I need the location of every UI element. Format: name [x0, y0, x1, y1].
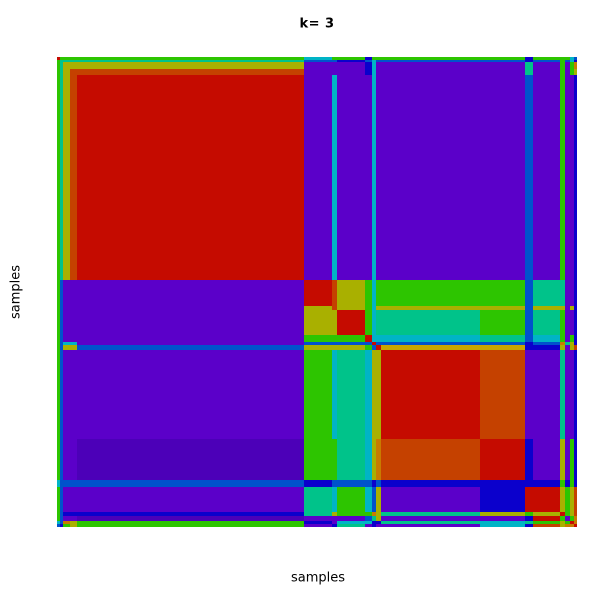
matrix-cell: [337, 439, 365, 480]
matrix-cell: [70, 75, 77, 280]
matrix-cell: [70, 524, 77, 527]
matrix-cell: [480, 75, 525, 280]
matrix-cell: [533, 75, 560, 280]
y-axis-label: samples: [9, 265, 24, 319]
matrix-cell: [525, 480, 533, 487]
matrix-cell: [480, 524, 525, 527]
matrix-cell: [533, 480, 560, 487]
matrix-cell: [574, 487, 577, 511]
matrix-cell: [77, 75, 304, 280]
matrix-cell: [304, 75, 332, 280]
matrix-cell: [480, 280, 525, 305]
matrix-cell: [533, 439, 560, 480]
matrix-cell: [70, 480, 77, 487]
matrix-cell: [337, 480, 365, 487]
matrix-cell: [381, 75, 480, 280]
matrix-cell: [533, 350, 560, 439]
matrix-cell: [304, 280, 332, 305]
matrix-cell: [77, 350, 304, 439]
plot-canvas: k= 3 samples samples: [0, 0, 600, 600]
matrix-cell: [480, 487, 525, 511]
matrix-cell: [63, 310, 70, 335]
matrix-cell: [381, 439, 480, 480]
consensus-matrix-heatmap: [57, 57, 577, 527]
matrix-cell: [533, 524, 560, 527]
matrix-cell: [365, 280, 372, 305]
matrix-cell: [63, 75, 70, 280]
matrix-cell: [63, 480, 70, 487]
matrix-cell: [77, 280, 304, 305]
page-title: k= 3: [299, 17, 334, 32]
matrix-cell: [337, 75, 365, 280]
matrix-cell: [533, 310, 560, 335]
matrix-cell: [533, 487, 560, 511]
matrix-cell: [365, 487, 372, 511]
matrix-cell: [337, 350, 365, 439]
matrix-cell: [77, 524, 304, 527]
matrix-cell: [381, 310, 480, 335]
matrix-cell: [480, 439, 525, 480]
matrix-cell: [70, 310, 77, 335]
matrix-cell: [63, 524, 70, 527]
matrix-cell: [304, 310, 332, 335]
matrix-cell: [304, 480, 332, 487]
matrix-cell: [77, 439, 304, 480]
matrix-cell: [70, 487, 77, 511]
matrix-cell: [574, 75, 577, 280]
matrix-cell: [63, 487, 70, 511]
matrix-cell: [365, 75, 372, 280]
matrix-cell: [337, 487, 365, 511]
matrix-cell: [525, 524, 533, 527]
matrix-cell: [381, 487, 480, 511]
matrix-cell: [525, 439, 533, 480]
matrix-cell: [480, 350, 525, 439]
matrix-cell: [574, 310, 577, 335]
matrix-cell: [525, 487, 533, 511]
matrix-cell: [337, 280, 365, 305]
matrix-cell: [574, 439, 577, 480]
matrix-cell: [574, 280, 577, 305]
matrix-cell: [63, 350, 70, 439]
matrix-cell: [365, 480, 372, 487]
matrix-cell: [574, 350, 577, 439]
matrix-cell: [525, 75, 533, 280]
matrix-cell: [63, 439, 70, 480]
matrix-cell: [525, 280, 533, 305]
matrix-cell: [70, 350, 77, 439]
matrix-cell: [381, 524, 480, 527]
matrix-cell: [70, 439, 77, 480]
matrix-cell: [533, 280, 560, 305]
matrix-cell: [525, 350, 533, 439]
matrix-cell: [365, 350, 372, 439]
matrix-cell: [304, 350, 332, 439]
matrix-cell: [63, 280, 70, 305]
matrix-cell: [365, 524, 372, 527]
matrix-cell: [337, 524, 365, 527]
matrix-cell: [304, 487, 332, 511]
matrix-cell: [480, 310, 525, 335]
matrix-cell: [304, 439, 332, 480]
matrix-cell: [337, 310, 365, 335]
matrix-cell: [574, 480, 577, 487]
matrix-cell: [381, 350, 480, 439]
matrix-cell: [365, 439, 372, 480]
matrix-cell: [381, 280, 480, 305]
matrix-cell: [77, 487, 304, 511]
x-axis-label: samples: [291, 571, 345, 586]
matrix-cell: [480, 480, 525, 487]
matrix-cell: [525, 310, 533, 335]
matrix-cell: [381, 480, 480, 487]
matrix-cell: [77, 310, 304, 335]
matrix-cell: [365, 310, 372, 335]
matrix-cell: [574, 524, 577, 527]
matrix-cell: [304, 524, 332, 527]
matrix-cell: [70, 280, 77, 305]
matrix-cell: [77, 480, 304, 487]
